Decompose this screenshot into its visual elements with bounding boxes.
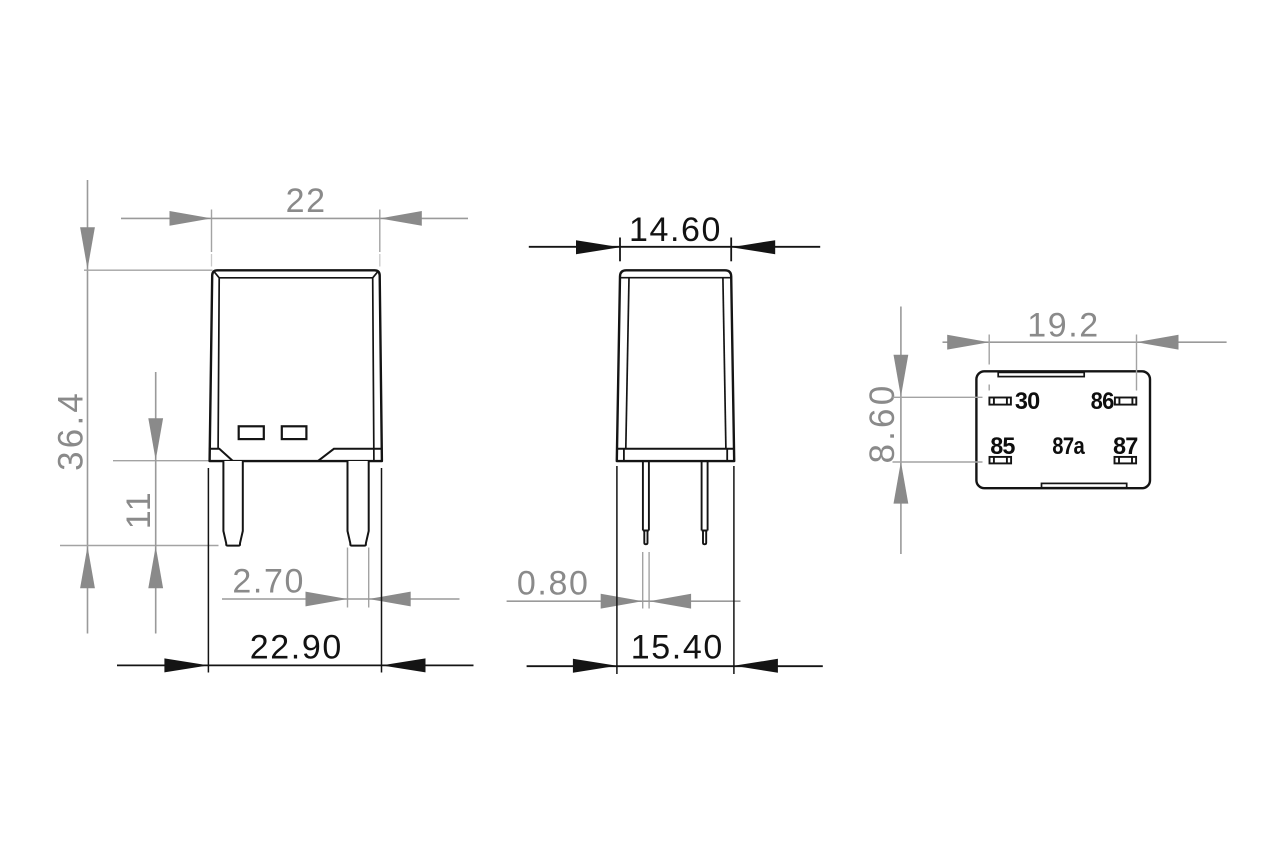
svg-text:14.60: 14.60 xyxy=(629,211,722,249)
svg-text:8.60: 8.60 xyxy=(863,383,902,464)
svg-text:87a: 87a xyxy=(1052,433,1085,460)
svg-text:15.40: 15.40 xyxy=(631,628,724,666)
svg-text:11: 11 xyxy=(120,491,158,530)
svg-text:22: 22 xyxy=(286,182,327,220)
svg-text:30: 30 xyxy=(1015,388,1040,415)
svg-text:86: 86 xyxy=(1091,388,1114,415)
svg-text:0.80: 0.80 xyxy=(517,565,590,603)
svg-text:85: 85 xyxy=(990,433,1015,460)
svg-text:2.70: 2.70 xyxy=(232,563,305,601)
svg-text:36.4: 36.4 xyxy=(52,390,91,471)
svg-text:22.90: 22.90 xyxy=(250,629,343,667)
svg-text:19.2: 19.2 xyxy=(1027,307,1100,345)
svg-text:87: 87 xyxy=(1113,433,1138,460)
